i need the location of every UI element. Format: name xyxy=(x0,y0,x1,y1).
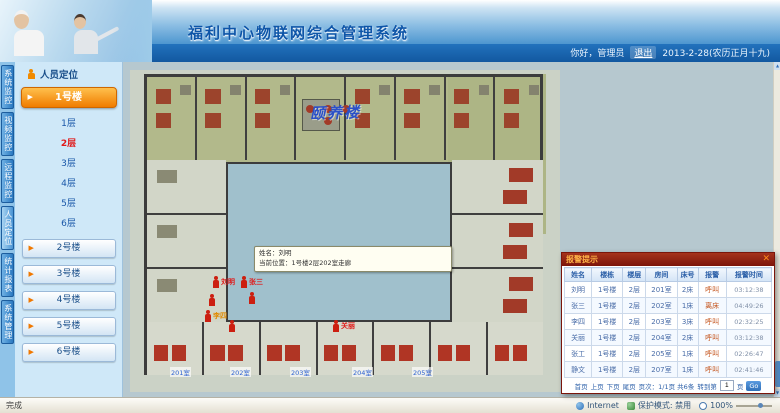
alarm-col-header: 报警时间 xyxy=(726,268,771,282)
alarm-row-5[interactable]: 张工1号楼2层205室1床呼叫02:26:47 xyxy=(565,346,772,362)
side-tab-5[interactable]: 统计报表 xyxy=(1,253,14,297)
room xyxy=(247,77,297,160)
pager-prev[interactable]: 上页 xyxy=(591,381,604,391)
alarm-cell: 2层 xyxy=(623,314,646,330)
pager-first[interactable]: 首页 xyxy=(575,381,588,391)
alarm-cell: 2层 xyxy=(623,362,646,378)
floorplan-right-rooms xyxy=(452,160,543,322)
building-button-label: 6号楼 xyxy=(57,347,81,357)
room xyxy=(488,322,543,375)
building-list: ▶2号楼▶3号楼▶4号楼▶5号楼▶6号楼 xyxy=(15,239,122,362)
pager-last[interactable]: 尾页 xyxy=(623,381,636,391)
status-right-cluster: Internet 保护模式: 禁用 100% xyxy=(576,400,772,411)
alarm-cell: 2床 xyxy=(677,330,698,346)
alarm-cell: 207室 xyxy=(646,362,677,378)
room xyxy=(431,322,488,375)
person-marker-3[interactable] xyxy=(208,294,216,306)
status-bar: 完成 Internet 保护模式: 禁用 100% xyxy=(0,397,780,413)
floor-list: 1层2层3层4层5层6层 xyxy=(15,112,122,232)
alarm-col-header: 房间 xyxy=(646,268,677,282)
tooltip-line2: 当前位置：1号楼2层202室走廊 xyxy=(259,259,447,269)
alarm-cell: 2层 xyxy=(623,330,646,346)
alarm-row-3[interactable]: 李四1号楼2层203室3床呼叫02:32:25 xyxy=(565,314,772,330)
alarm-cell: 3床 xyxy=(677,314,698,330)
person-icon xyxy=(27,69,36,79)
person-marker-4[interactable] xyxy=(248,292,256,304)
zoom-level-text: 100% xyxy=(710,401,733,410)
pager-go-button[interactable]: Go xyxy=(746,381,761,391)
room xyxy=(147,77,197,160)
alarm-popup-title: 报警提示 xyxy=(566,255,598,264)
person-name-label: 刘明 xyxy=(221,277,235,287)
alarm-cell: 1号楼 xyxy=(592,282,623,298)
alarm-row-2[interactable]: 张三1号楼2层202室1床离床04:49:26 xyxy=(565,298,772,314)
alarm-cell: 02:32:25 xyxy=(726,314,771,330)
sidebar-panel: 人员定位 ▶ 1号楼 1层2层3层4层5层6层 ▶2号楼▶3号楼▶4号楼▶5号楼… xyxy=(15,62,123,397)
alarm-cell: 张工 xyxy=(565,346,592,362)
alarm-col-header: 楼栋 xyxy=(592,268,623,282)
alarm-col-header: 床号 xyxy=(677,268,698,282)
alarm-col-header: 姓名 xyxy=(565,268,592,282)
pager-goto-label: 转到第 xyxy=(697,381,717,391)
alarm-col-header: 楼层 xyxy=(623,268,646,282)
alarm-cell: 1号楼 xyxy=(592,346,623,362)
floor-item-5[interactable]: 5层 xyxy=(36,192,100,212)
person-name-label: 关丽 xyxy=(341,321,355,331)
alarm-row-1[interactable]: 刘明1号楼2层201室2床呼叫03:12:38 xyxy=(565,282,772,298)
building-button-3[interactable]: ▶3号楼 xyxy=(22,265,116,284)
alarm-cell: 2层 xyxy=(623,282,646,298)
room xyxy=(147,160,226,215)
room xyxy=(452,269,543,322)
side-tab-2[interactable]: 视频监控 xyxy=(1,112,14,156)
alarm-cell: 静文 xyxy=(565,362,592,378)
panel-title: 人员定位 xyxy=(40,67,78,81)
alarm-cell: 203室 xyxy=(646,314,677,330)
alarm-cell: 呼叫 xyxy=(698,314,726,330)
alarm-cell: 03:12:38 xyxy=(726,282,771,298)
person-tooltip: 姓名：刘明 当前位置：1号楼2层202室走廊 xyxy=(254,246,452,272)
pager: 首页 上页 下页 尾页 页次：1/1页 共6条 转到第 页 Go xyxy=(562,378,774,393)
alarm-cell: 刘明 xyxy=(565,282,592,298)
shield-icon xyxy=(627,402,635,410)
pager-info: 页次：1/1页 共6条 xyxy=(639,381,695,391)
room-number-label: 205室 xyxy=(412,367,433,377)
alarm-cell: 1号楼 xyxy=(592,314,623,330)
alarm-cell: 2层 xyxy=(623,346,646,362)
alarm-cell: 2床 xyxy=(677,282,698,298)
side-tab-6[interactable]: 系统管理 xyxy=(1,300,14,344)
greeting-text: 你好，管理员 xyxy=(570,46,624,59)
alarm-cell: 1床 xyxy=(677,298,698,314)
person-marker-6[interactable] xyxy=(228,320,236,332)
protected-mode-text: 保护模式: 禁用 xyxy=(638,400,691,411)
alarm-cell: 张三 xyxy=(565,298,592,314)
floor-item-6[interactable]: 6层 xyxy=(36,212,100,232)
alarm-cell: 1号楼 xyxy=(592,362,623,378)
alarm-cell: 201室 xyxy=(646,282,677,298)
app-window: 福利中心物联网综合管理系统 你好，管理员 退出 2013-2-28(农历正月十九… xyxy=(0,0,780,413)
building-button-label: 4号楼 xyxy=(57,295,81,305)
arrow-right-icon: ▶ xyxy=(29,240,34,257)
alarm-popup: 报警提示 ✕ 姓名楼栋楼层房间床号报警报警时间 刘明1号楼2层201室2床呼叫0… xyxy=(561,252,775,394)
magnifier-icon xyxy=(699,402,707,410)
person-name-label: 李四 xyxy=(213,311,227,321)
alarm-cell: 1号楼 xyxy=(592,298,623,314)
building-button-active[interactable]: ▶ 1号楼 xyxy=(21,87,117,108)
alarm-row-6[interactable]: 静文1号楼2层207室1床呼叫02:41:46 xyxy=(565,362,772,378)
building-button-label: 5号楼 xyxy=(57,321,81,331)
globe-icon xyxy=(576,402,584,410)
alarm-cell: 04:49:26 xyxy=(726,298,771,314)
building-button-6[interactable]: ▶6号楼 xyxy=(22,343,116,362)
person-marker-2[interactable]: 张三 xyxy=(240,276,248,288)
alarm-cell: 李四 xyxy=(565,314,592,330)
alarm-cell: 02:41:46 xyxy=(726,362,771,378)
person-marker-5[interactable]: 李四 xyxy=(204,310,212,322)
alarm-row-4[interactable]: 关丽1号楼2层204室2床呼叫03:12:38 xyxy=(565,330,772,346)
floor-item-4[interactable]: 4层 xyxy=(36,172,100,192)
page-number-input[interactable] xyxy=(720,380,734,391)
header-photo xyxy=(0,0,152,62)
floor-item-1[interactable]: 1层 xyxy=(36,112,100,132)
side-tab-1[interactable]: 系统监控 xyxy=(1,65,14,109)
arrow-right-icon: ▶ xyxy=(29,344,34,361)
alarm-table-header: 姓名楼栋楼层房间床号报警报警时间 xyxy=(565,268,772,282)
room xyxy=(396,77,446,160)
floor-item-3[interactable]: 3层 xyxy=(36,152,100,172)
alarm-cell: 03:12:38 xyxy=(726,330,771,346)
room xyxy=(452,215,543,270)
side-tab-3[interactable]: 远程监控 xyxy=(1,159,14,203)
alarm-cell: 02:26:47 xyxy=(726,346,771,362)
side-tab-4[interactable]: 人员定位 xyxy=(1,206,14,250)
side-tab-strip: 系统监控视频监控远程监控人员定位统计报表系统管理 xyxy=(0,62,15,397)
panel-header: 人员定位 xyxy=(15,62,122,84)
zoom-slider[interactable] xyxy=(736,405,772,407)
room xyxy=(495,77,543,160)
room xyxy=(197,77,247,160)
photo-figure-man xyxy=(14,10,44,56)
alarm-cell: 呼叫 xyxy=(698,346,726,362)
arrow-right-icon: ▶ xyxy=(28,88,33,107)
zoom-group[interactable]: 100% xyxy=(699,401,772,410)
alarm-cell: 呼叫 xyxy=(698,330,726,346)
floor-plan: 颐养楼 姓名：刘明 当前位置：1号楼2层202室走廊 201室202室203室2… xyxy=(130,70,560,392)
alarm-cell: 2层 xyxy=(623,298,646,314)
arrow-right-icon: ▶ xyxy=(29,266,34,283)
building-caption: 颐养楼 xyxy=(310,101,362,124)
person-marker-7[interactable]: 关丽 xyxy=(332,320,340,332)
building-button-4[interactable]: ▶4号楼 xyxy=(22,291,116,310)
app-title: 福利中心物联网综合管理系统 xyxy=(188,22,409,43)
pager-page-unit: 页 xyxy=(737,381,744,391)
user-strip: 你好，管理员 退出 2013-2-28(农历正月十九) xyxy=(570,46,770,59)
room xyxy=(446,77,496,160)
room-number-label: 202室 xyxy=(230,367,251,377)
scroll-up-icon[interactable]: ▲ xyxy=(774,62,780,70)
alarm-cell: 1号楼 xyxy=(592,330,623,346)
alarm-cell: 呼叫 xyxy=(698,282,726,298)
tooltip-line1: 姓名：刘明 xyxy=(259,249,447,259)
status-done-text: 完成 xyxy=(6,400,22,411)
room-number-label: 204室 xyxy=(352,367,373,377)
person-marker-1[interactable]: 刘明 xyxy=(212,276,220,288)
alarm-cell: 关丽 xyxy=(565,330,592,346)
date-text: 2013-2-28(农历正月十九) xyxy=(662,46,770,59)
room-number-label: 203室 xyxy=(290,367,311,377)
building-button-label: 2号楼 xyxy=(57,243,81,253)
floorplan-courtyard xyxy=(226,162,452,322)
arrow-right-icon: ▶ xyxy=(29,318,34,335)
alarm-cell: 205室 xyxy=(646,346,677,362)
alarm-popup-titlebar: 报警提示 ✕ xyxy=(562,253,774,266)
building-button-2[interactable]: ▶2号楼 xyxy=(22,239,116,258)
pager-next[interactable]: 下页 xyxy=(607,381,620,391)
alarm-col-header: 报警 xyxy=(698,268,726,282)
room-number-label: 201室 xyxy=(170,367,191,377)
alarm-cell: 呼叫 xyxy=(698,362,726,378)
room xyxy=(452,160,543,215)
alarm-cell: 1床 xyxy=(677,362,698,378)
alarm-cell: 离床 xyxy=(698,298,726,314)
logout-link[interactable]: 退出 xyxy=(630,46,656,59)
scrollbar-thumb[interactable] xyxy=(775,361,780,387)
building-button-5[interactable]: ▶5号楼 xyxy=(22,317,116,336)
alarm-cell: 202室 xyxy=(646,298,677,314)
zone-text: Internet xyxy=(587,401,619,410)
floor-item-2[interactable]: 2层 xyxy=(36,132,100,152)
room xyxy=(147,215,226,270)
close-icon[interactable]: ✕ xyxy=(762,253,770,266)
building-button-label: 3号楼 xyxy=(57,269,81,279)
alarm-cell: 1床 xyxy=(677,346,698,362)
arrow-right-icon: ▶ xyxy=(29,292,34,309)
zone-group: Internet xyxy=(576,401,619,410)
photo-figure-woman xyxy=(74,14,98,54)
alarm-cell: 204室 xyxy=(646,330,677,346)
protected-mode-group: 保护模式: 禁用 xyxy=(627,400,691,411)
alarm-table: 姓名楼栋楼层房间床号报警报警时间 刘明1号楼2层201室2床呼叫03:12:38… xyxy=(564,267,772,378)
person-name-label: 张三 xyxy=(249,277,263,287)
